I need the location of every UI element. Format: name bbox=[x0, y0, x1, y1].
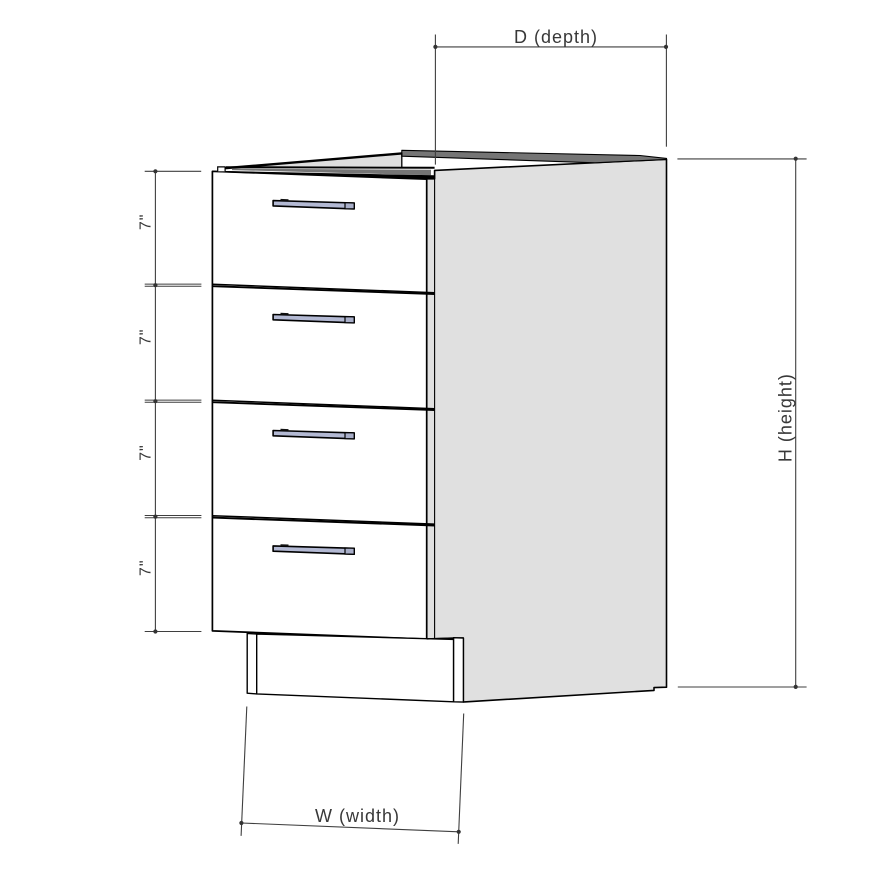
svg-text:7": 7" bbox=[138, 214, 155, 231]
svg-text:D (depth): D (depth) bbox=[514, 27, 598, 47]
svg-text:7": 7" bbox=[138, 444, 155, 461]
svg-text:W (width): W (width) bbox=[315, 806, 400, 826]
svg-text:H (height): H (height) bbox=[776, 373, 796, 462]
svg-text:7": 7" bbox=[138, 560, 155, 577]
svg-text:7": 7" bbox=[138, 329, 155, 346]
